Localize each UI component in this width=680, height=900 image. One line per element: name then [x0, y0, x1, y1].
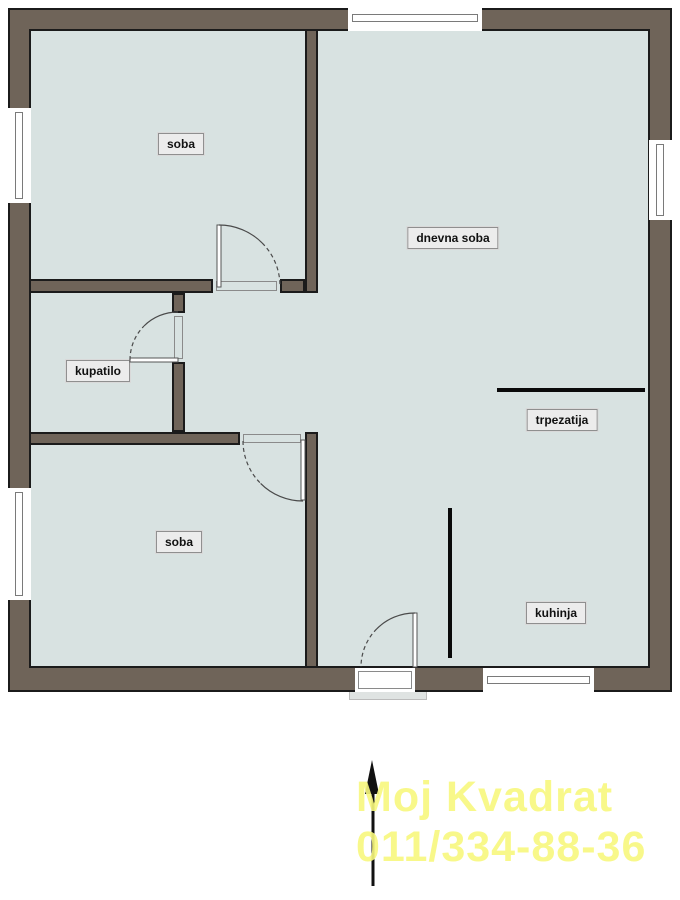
- wall-kupatilo-bottom: [29, 432, 240, 445]
- window-left-top: [8, 108, 31, 203]
- room-label-kuhinja: kuhinja: [526, 602, 586, 624]
- door-frame-soba-bottom: [243, 434, 301, 443]
- door-frame-soba-top: [216, 281, 277, 291]
- room-label-soba-bottom: soba: [156, 531, 202, 553]
- wall-soba-bottom-right: [280, 279, 305, 293]
- wall-kupatilo-right: [172, 362, 185, 432]
- interior-floor: [29, 29, 650, 668]
- watermark-line2: 011/334-88-36: [356, 826, 646, 869]
- window-top: [348, 8, 482, 31]
- floor-plan-page: soba dnevna soba kupatilo soba trpezatij…: [0, 0, 680, 900]
- door-frame-kupatilo: [174, 316, 183, 359]
- door-frame-entrance: [358, 671, 412, 689]
- wall-soba2-right: [305, 432, 318, 668]
- window-left-bottom: [8, 488, 31, 600]
- room-label-trpezatija: trpezatija: [527, 409, 598, 431]
- wall-soba-bottom-left: [29, 279, 213, 293]
- room-label-soba-top: soba: [158, 133, 204, 155]
- wall-soba-dnevna: [305, 29, 318, 293]
- window-right: [649, 140, 672, 220]
- watermark-line1: Moj Kvadrat: [356, 776, 613, 819]
- window-bottom: [483, 668, 594, 692]
- room-label-dnevna-soba: dnevna soba: [407, 227, 498, 249]
- room-label-kupatilo: kupatilo: [66, 360, 130, 382]
- entrance-threshold: [349, 692, 427, 700]
- wall-kupatilo-stub: [172, 293, 185, 313]
